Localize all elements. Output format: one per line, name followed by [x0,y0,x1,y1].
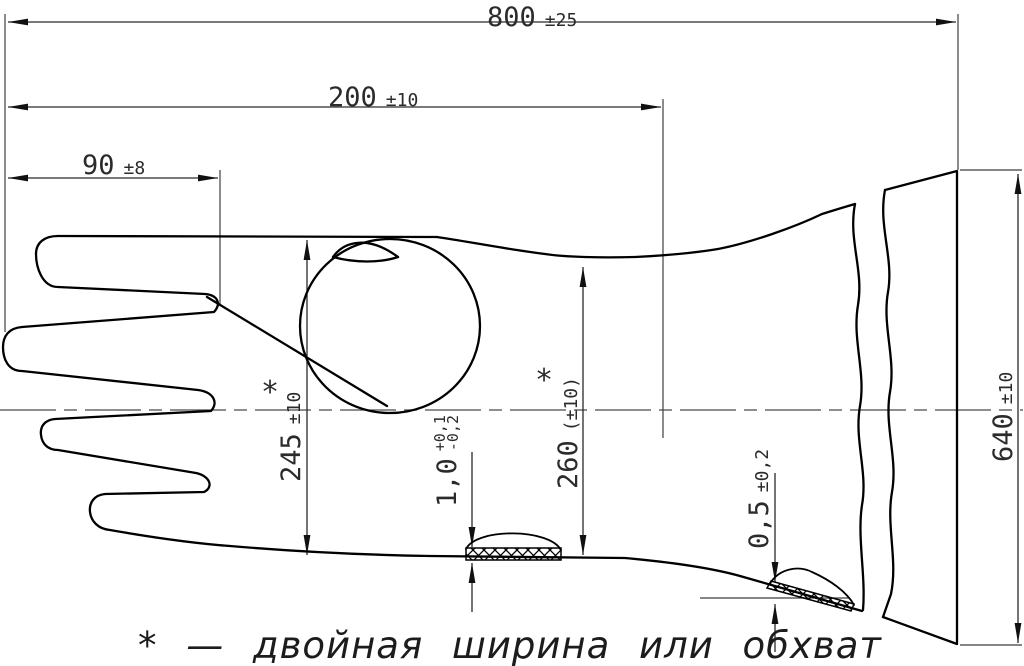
cuff-break-line-right [883,190,894,617]
dim-800-label: 800±25 [487,2,577,33]
dim-90-label: 90±8 [82,150,145,181]
dim-1-0-label: 1,0+0,1-0,2 [431,415,463,507]
dim-245-label: 245±10 [276,392,307,482]
glove-drawing: 800±25 200±10 90±8 245±10 * 260(±10) * 1… [0,0,1024,666]
thumb-circle [300,239,480,413]
dim-200-label: 200±10 [328,82,418,113]
thumb-base-arc-lower [333,257,398,262]
dim-640-label: 640±10 [988,372,1019,462]
thumb-base-arc-upper [333,243,398,257]
thumb-crotch-line [207,297,387,406]
patch-palm-seam [466,533,561,560]
dim-245-footnote-marker: * [261,375,279,410]
technical-drawing-page: 800±25 200±10 90±8 245±10 * 260(±10) * 1… [0,0,1024,666]
glove-top-contour [437,204,855,257]
cuff-break-line-left [853,204,863,610]
dim-260-footnote-marker: * [535,363,553,398]
footnote-text: * — двойная ширина или обхват [138,624,882,666]
dim-260-label: 260(±10) [553,377,584,489]
dim-0-5-label: 0,5±0,2 [744,449,775,549]
dimension-labels: 800±25 200±10 90±8 245±10 * 260(±10) * 1… [82,2,1019,549]
patch-cuff-seam [767,569,854,611]
